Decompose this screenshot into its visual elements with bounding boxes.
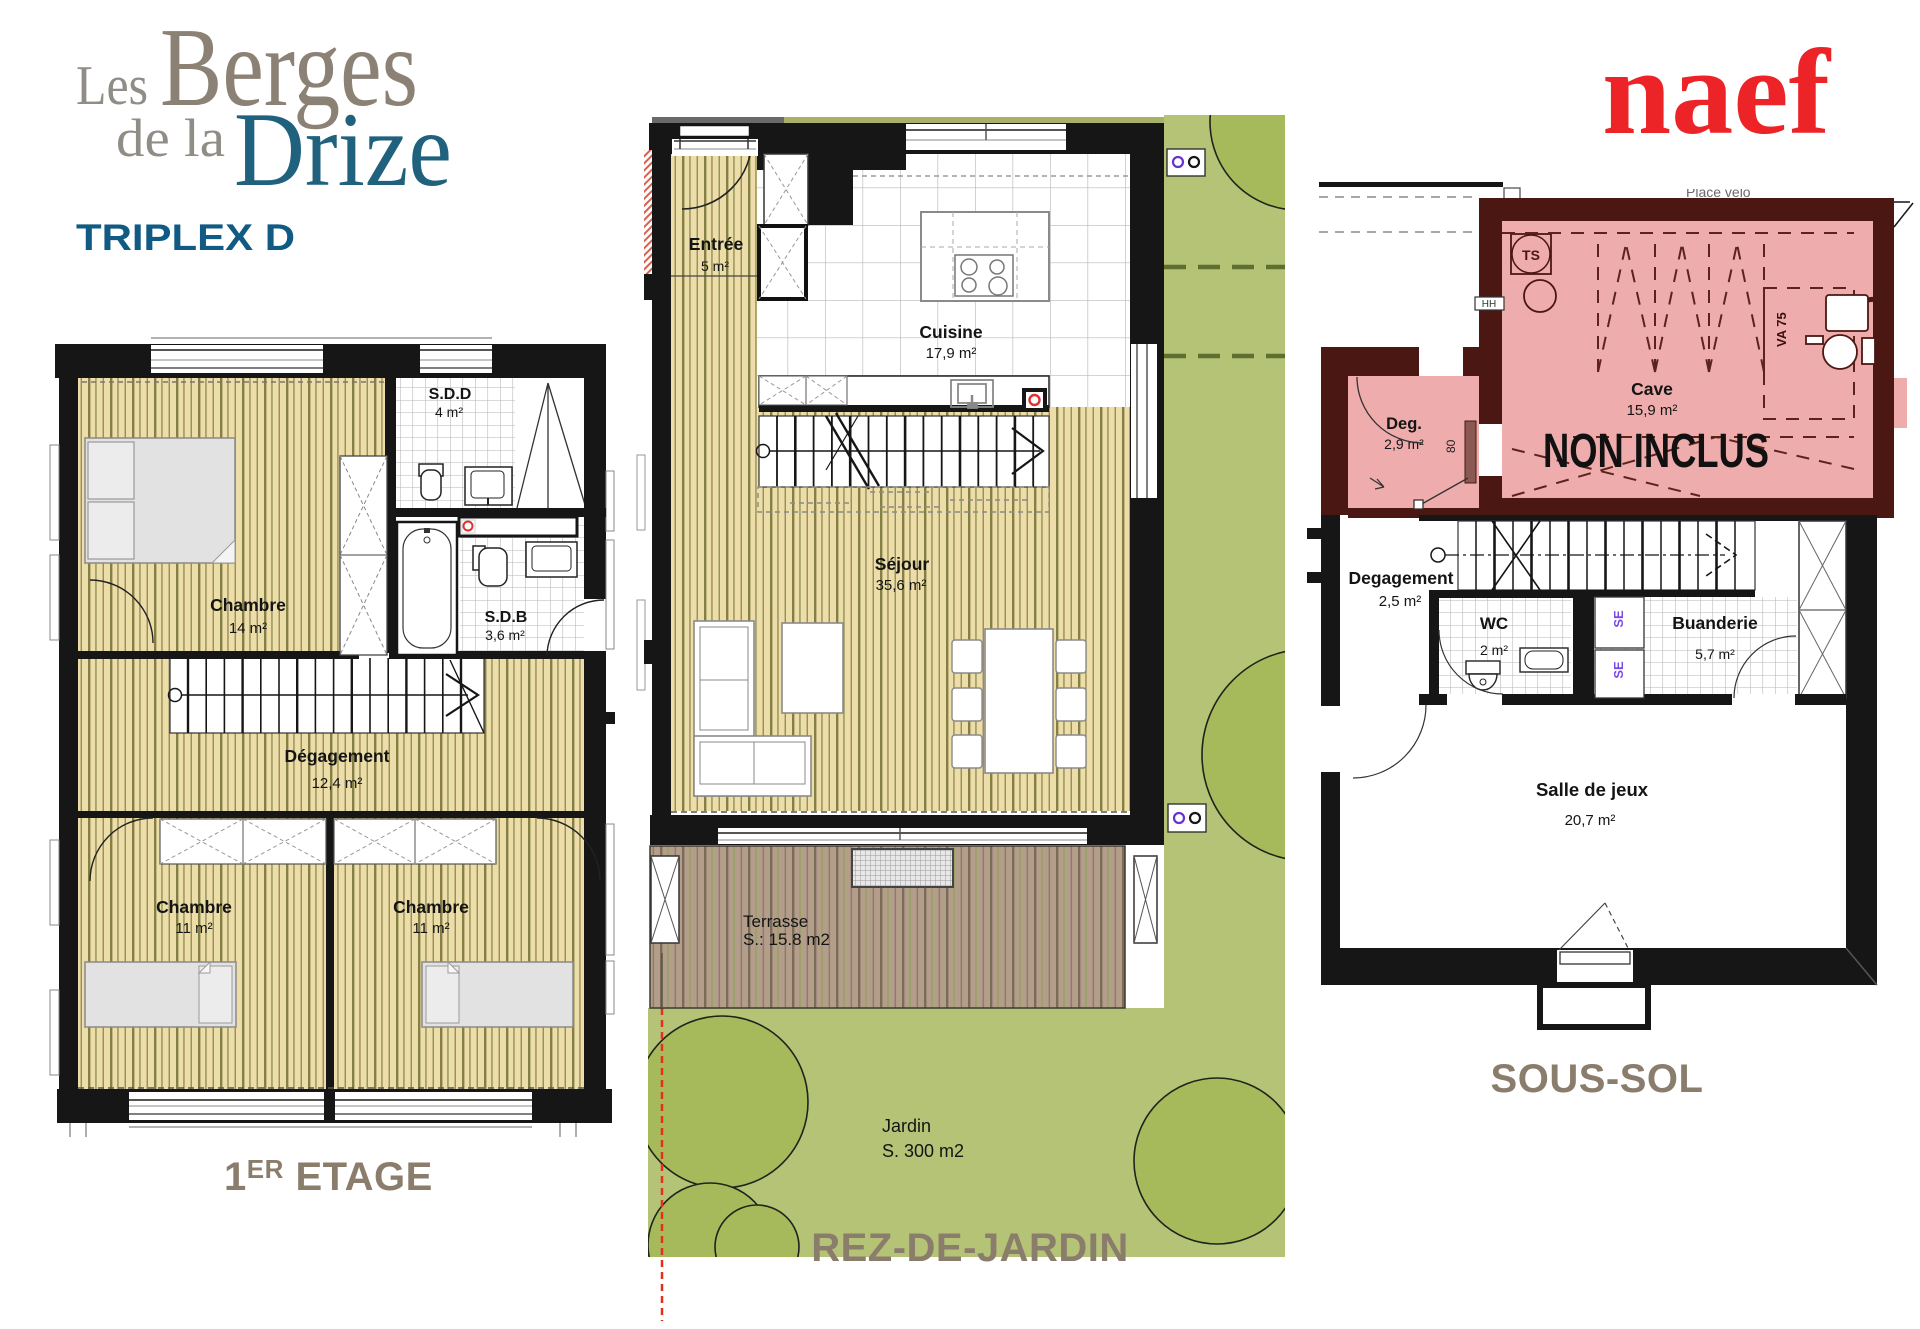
svg-text:HH: HH [1482,299,1496,310]
svg-text:Chambre: Chambre [393,897,469,917]
svg-text:Chambre: Chambre [156,897,232,917]
svg-text:Jardin: Jardin [882,1116,931,1136]
svg-text:5 m²: 5 m² [701,258,729,274]
svg-text:REZ-DE-JARDIN: REZ-DE-JARDIN [811,1226,1129,1270]
svg-text:SOUS-SOL: SOUS-SOL [1491,1057,1704,1101]
svg-text:Cave: Cave [1631,379,1673,399]
svg-text:17,9 m²: 17,9 m² [926,345,977,362]
svg-text:Degagement: Degagement [1348,568,1453,588]
svg-text:3,6 m²: 3,6 m² [485,627,525,643]
svg-text:SE: SE [1611,661,1626,679]
svg-text:11 m²: 11 m² [175,920,212,937]
svg-text:20,7 m²: 20,7 m² [1565,812,1616,829]
svg-text:Salle de jeux: Salle de jeux [1536,779,1649,800]
svg-text:5,7 m²: 5,7 m² [1695,646,1735,662]
svg-text:Cuisine: Cuisine [919,322,982,342]
svg-text:NON INCLUS: NON INCLUS [1543,425,1769,478]
svg-text:Dégagement: Dégagement [284,746,389,766]
svg-text:S.D.D: S.D.D [429,386,472,403]
svg-text:SE: SE [1611,610,1626,628]
svg-text:Terrasse: Terrasse [743,912,808,931]
svg-text:35,6 m²: 35,6 m² [876,577,927,594]
svg-text:S. 300 m2: S. 300 m2 [882,1141,964,1161]
svg-text:de la: de la [116,108,225,168]
svg-text:naef: naef [1602,25,1831,160]
svg-text:2,9 m²: 2,9 m² [1384,436,1424,452]
svg-text:1ER ETAGE: 1ER ETAGE [224,1154,433,1199]
svg-text:Drize: Drize [234,91,452,208]
svg-text:WC: WC [1480,614,1508,633]
svg-text:Séjour: Séjour [875,554,930,574]
svg-text:2 m²: 2 m² [1480,642,1508,658]
svg-text:TRIPLEX D: TRIPLEX D [76,217,295,258]
svg-text:VA 75: VA 75 [1774,312,1789,347]
svg-text:Chambre: Chambre [210,595,286,615]
svg-text:TS: TS [1522,247,1540,263]
svg-text:15,9 m²: 15,9 m² [1627,402,1678,419]
svg-text:2,5 m²: 2,5 m² [1379,593,1422,610]
svg-text:11 m²: 11 m² [412,920,449,937]
svg-text:14 m²: 14 m² [229,620,267,637]
svg-text:Deg.: Deg. [1386,415,1422,433]
svg-text:4 m²: 4 m² [435,404,463,420]
svg-text:S.: 15.8 m2: S.: 15.8 m2 [743,930,830,949]
svg-text:12,4 m²: 12,4 m² [312,775,363,792]
svg-text:S.D.B: S.D.B [485,609,528,626]
svg-text:Entrée: Entrée [689,234,744,254]
svg-text:Buanderie: Buanderie [1672,613,1758,633]
svg-text:80: 80 [1444,439,1458,453]
